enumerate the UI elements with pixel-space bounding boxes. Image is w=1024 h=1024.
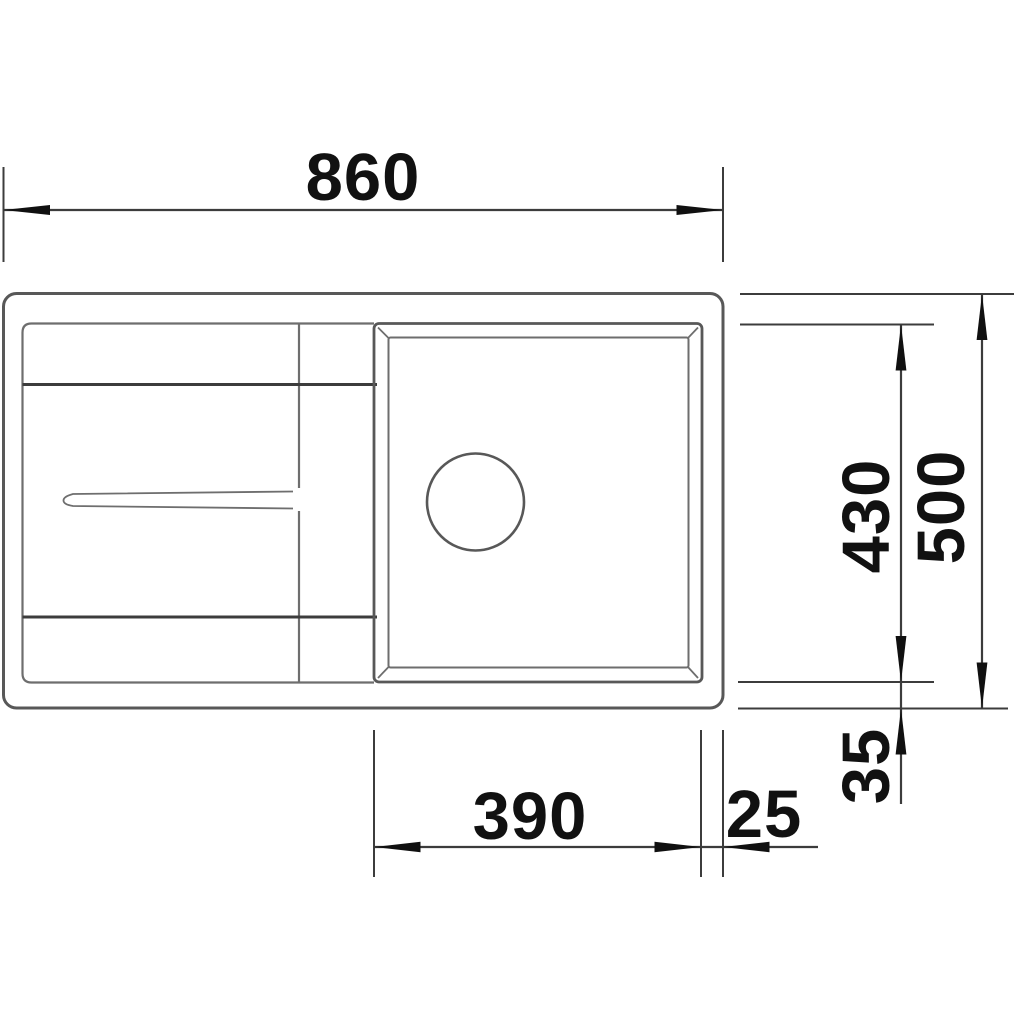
bowl-inner-outline — [389, 338, 689, 668]
bowl-miter-top-left — [378, 328, 389, 339]
arrowhead-down — [977, 663, 988, 709]
sink-plan — [4, 294, 724, 709]
sink-outer-outline — [4, 294, 724, 709]
arrowhead-up — [896, 325, 907, 371]
arrowhead-up — [977, 294, 988, 340]
arrowhead-right — [677, 205, 724, 215]
drain-hole — [427, 454, 524, 551]
dimension-label-overall-depth: 500 — [904, 450, 979, 565]
dimension-bowl-right-offset: 25 — [723, 730, 802, 877]
dimension-label-bowl-depth: 430 — [829, 459, 904, 574]
arrowhead-left — [4, 205, 51, 215]
arrowhead-left — [374, 842, 421, 852]
dimension-bowl-bottom-offset: 35 — [829, 709, 906, 805]
dimension-label-bowl-width: 390 — [473, 779, 588, 854]
dimension-overall-width: 860 — [4, 140, 724, 262]
dimension-label-bowl-bottom-offset: 35 — [829, 728, 904, 805]
dimension-label-bowl-right-offset: 25 — [726, 777, 803, 852]
arrowhead-down — [896, 636, 907, 682]
dimension-label-overall-width: 860 — [306, 140, 421, 215]
sink-dimension-drawing: 860 500 430 35 — [0, 0, 1024, 1024]
bowl-miter-bottom-left — [378, 667, 389, 679]
drain-channel — [64, 492, 294, 509]
bowl-miter-bottom-right — [688, 667, 699, 679]
technical-drawing-canvas: 860 500 430 35 — [0, 0, 1024, 1024]
arrowhead-right — [655, 842, 702, 852]
bowl-outer-outline — [374, 324, 702, 683]
bowl-miter-top-right — [688, 328, 699, 339]
